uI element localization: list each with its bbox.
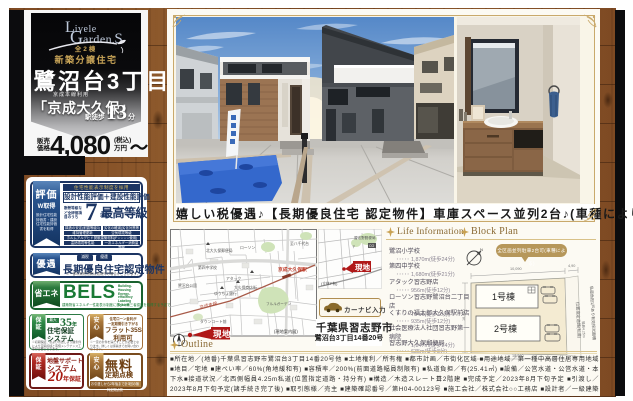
svg-text:私道負担1戸あり有効採光面積: 私道負担1戸あり有効採光面積 [589, 286, 598, 340]
svg-text:2号棟: 2号棟 [494, 323, 517, 334]
svg-text:4,90: 4,90 [568, 264, 575, 268]
svg-text:鷺沼台公園: 鷺沼台公園 [178, 283, 197, 288]
svg-text:N: N [480, 247, 483, 252]
svg-text:大久保商店街: 大久保商店街 [234, 285, 257, 290]
svg-text:ローソン: ローソン [240, 246, 255, 250]
svg-text:(立体P有): (立体P有) [321, 281, 338, 286]
svg-text:至八千代台: 至八千代台 [290, 241, 309, 246]
svg-text:〒: 〒 [352, 245, 356, 249]
svg-text:現地: 現地 [213, 329, 231, 339]
svg-text:10,090: 10,090 [510, 267, 522, 271]
svg-text:CO: CO [369, 244, 375, 248]
svg-text:フルルガーデン: フルルガーデン [266, 301, 291, 306]
svg-text:第四中学校: 第四中学校 [198, 265, 217, 270]
svg-text:幅員4.25m: 幅員4.25m [581, 321, 587, 338]
svg-text:タウンコート前: タウンコート前 [200, 319, 227, 324]
svg-text:アタック: アタック [226, 276, 241, 281]
svg-text:1号棟: 1号棟 [492, 291, 515, 302]
svg-text:16,460: 16,460 [462, 309, 466, 321]
svg-text:ゆうちょ銀行: ゆうちょ銀行 [214, 291, 237, 296]
svg-text:現地: 現地 [355, 262, 370, 272]
svg-text:(現地案内図): (現地案内図) [274, 328, 298, 335]
svg-text:京成大久保駅: 京成大久保駅 [278, 266, 307, 273]
svg-text:北大久保郵便局: 北大久保郵便局 [206, 248, 233, 253]
svg-text:習志野郵便局: 習志野郵便局 [354, 235, 376, 240]
